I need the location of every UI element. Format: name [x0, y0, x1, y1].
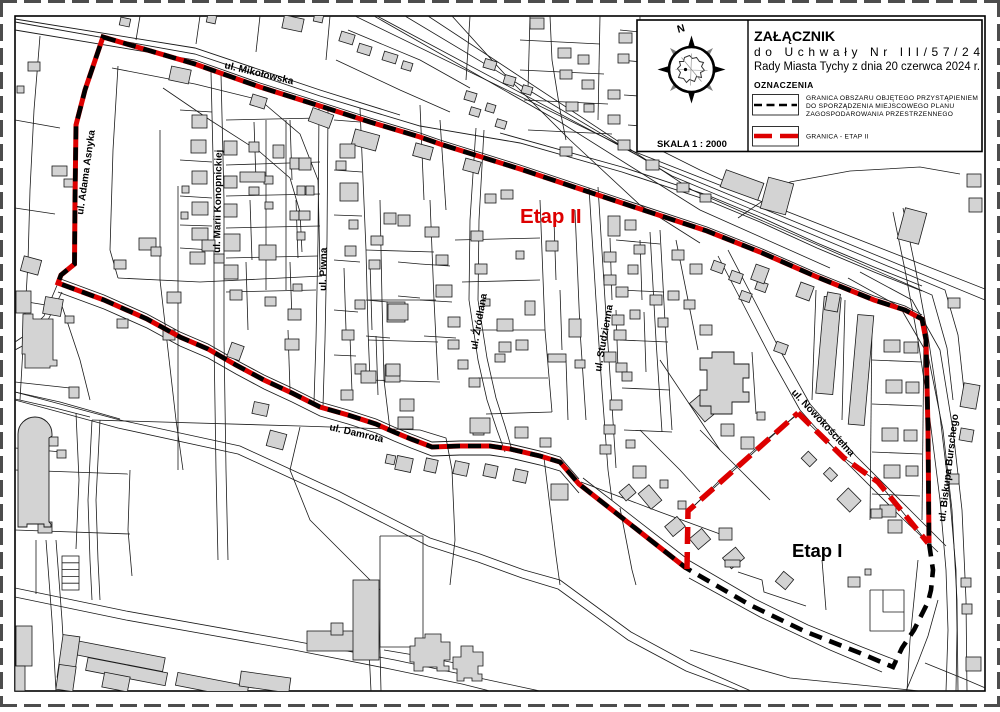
svg-text:Etap II: Etap II [520, 205, 582, 228]
svg-text:ul. Marii Konopnickiej: ul. Marii Konopnickiej [212, 149, 225, 253]
svg-text:Rady Miasta Tychy z dnia 20 cz: Rady Miasta Tychy z dnia 20 czerwca 2024… [754, 61, 980, 73]
svg-text:GRANICA OBSZARU OBJĘTEGO PRZYS: GRANICA OBSZARU OBJĘTEGO PRZYSTĄPIENIEM [806, 95, 978, 102]
svg-text:SKALA 1 : 2000: SKALA 1 : 2000 [657, 139, 727, 150]
svg-text:ZAGOSPODAROWANIA PRZESTRZENNEG: ZAGOSPODAROWANIA PRZESTRZENNEGO [806, 111, 953, 118]
svg-text:GRANICA - ETAP II: GRANICA - ETAP II [806, 134, 869, 141]
svg-text:DO SPORZĄDZENIA MIEJSCOWEGO PL: DO SPORZĄDZENIA MIEJSCOWEGO PLANU [806, 103, 954, 110]
svg-text:ul. Piwna: ul. Piwna [318, 247, 330, 291]
svg-text:Etap I: Etap I [792, 540, 842, 561]
svg-text:OZNACZENIA: OZNACZENIA [754, 80, 814, 90]
svg-text:ZAŁĄCZNIK: ZAŁĄCZNIK [754, 29, 836, 45]
